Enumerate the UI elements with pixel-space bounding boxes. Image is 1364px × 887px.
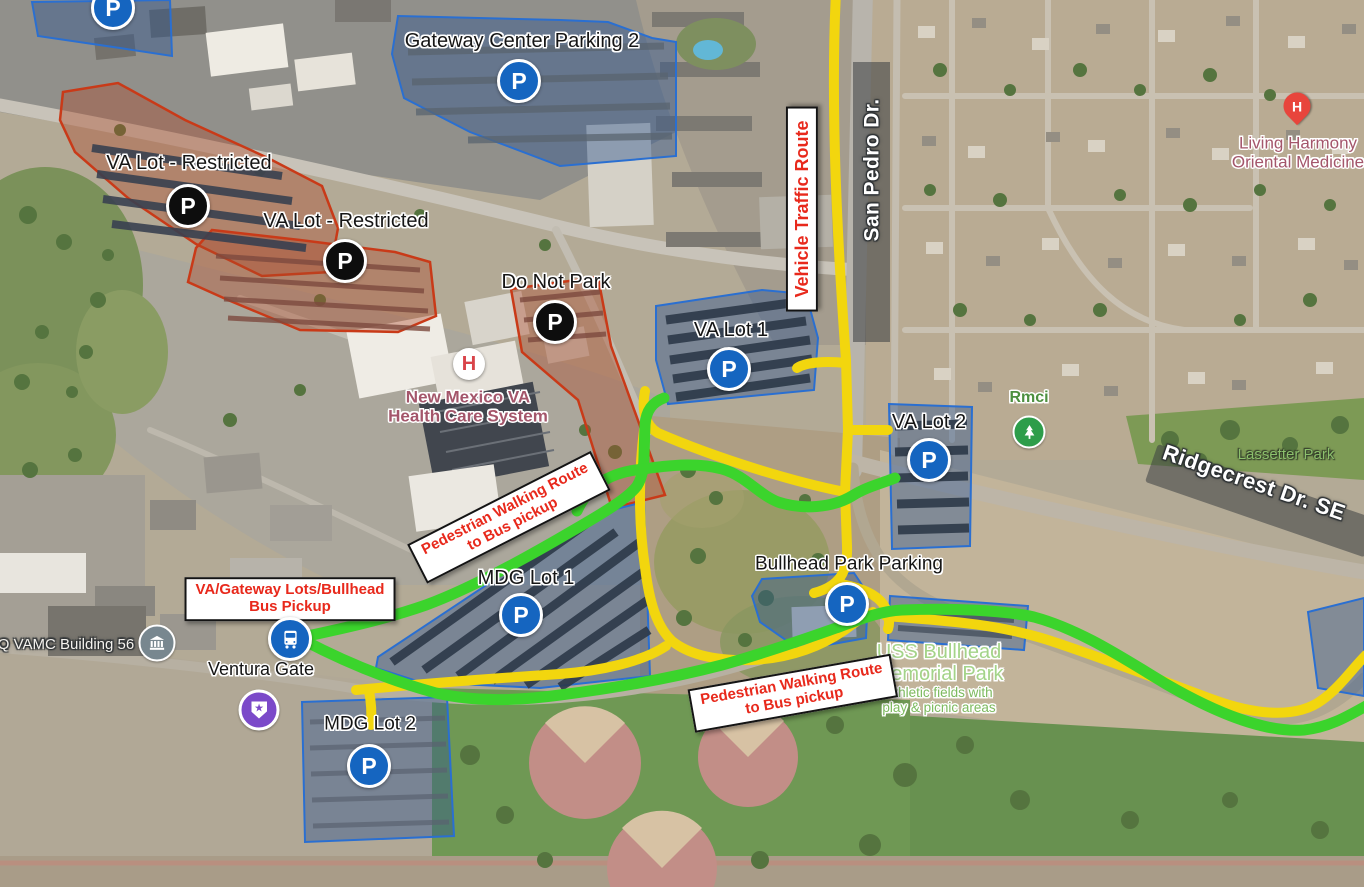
parking-icon-va-lot-2: P bbox=[907, 438, 951, 482]
government-building-icon-vamc bbox=[139, 625, 176, 662]
building-icon bbox=[148, 634, 167, 653]
landmark-star-icon-ventura: ★ bbox=[239, 690, 280, 731]
callout-vehicle-traffic-route: Vehicle Traffic Route bbox=[786, 106, 818, 311]
pool bbox=[693, 40, 723, 60]
satellite-imagery bbox=[0, 0, 1364, 887]
parking-icon-va-restricted-1: P bbox=[166, 184, 210, 228]
parking-icon-gateway-1: P bbox=[91, 0, 135, 30]
parking-icon-do-not-park: P bbox=[533, 300, 577, 344]
hospital-pin-icon-living-harmony: H bbox=[1284, 93, 1311, 120]
parking-icon-bullhead: P bbox=[825, 582, 869, 626]
parking-icon-va-restricted-2: P bbox=[323, 239, 367, 283]
tree-icon bbox=[1020, 423, 1038, 441]
map-canvas: Gateway Center Parking 2 VA Lot - Restri… bbox=[0, 0, 1364, 887]
parking-icon-va-lot-1: P bbox=[707, 347, 751, 391]
parking-icon-mdg-lot-1: P bbox=[499, 593, 543, 637]
hospital-icon-nm-va: H bbox=[453, 348, 485, 380]
bus-icon bbox=[280, 629, 301, 650]
san-pedro-label-band bbox=[853, 62, 890, 342]
parking-icon-mdg-lot-2: P bbox=[347, 744, 391, 788]
callout-bus-pickup: VA/Gateway Lots/BullheadBus Pickup bbox=[185, 577, 396, 621]
park-tree-icon-rmci bbox=[1013, 416, 1046, 449]
bus-pickup-icon bbox=[268, 617, 312, 661]
parking-icon-gateway-2: P bbox=[497, 59, 541, 103]
